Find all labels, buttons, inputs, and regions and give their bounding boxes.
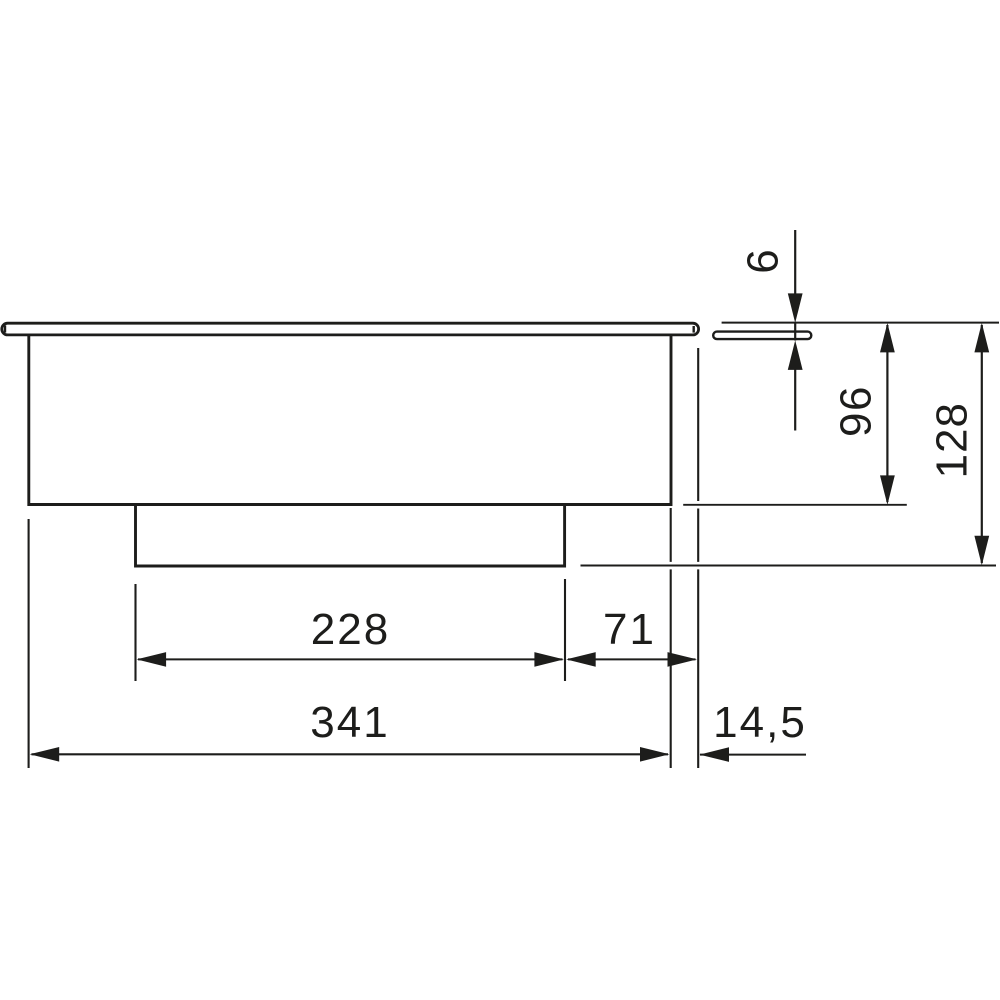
svg-text:14,5: 14,5 [713,698,807,747]
svg-text:71: 71 [603,605,656,654]
svg-text:6: 6 [739,249,788,273]
svg-text:341: 341 [310,698,389,747]
svg-text:96: 96 [832,385,881,437]
svg-text:128: 128 [928,402,977,478]
svg-text:228: 228 [311,605,390,654]
